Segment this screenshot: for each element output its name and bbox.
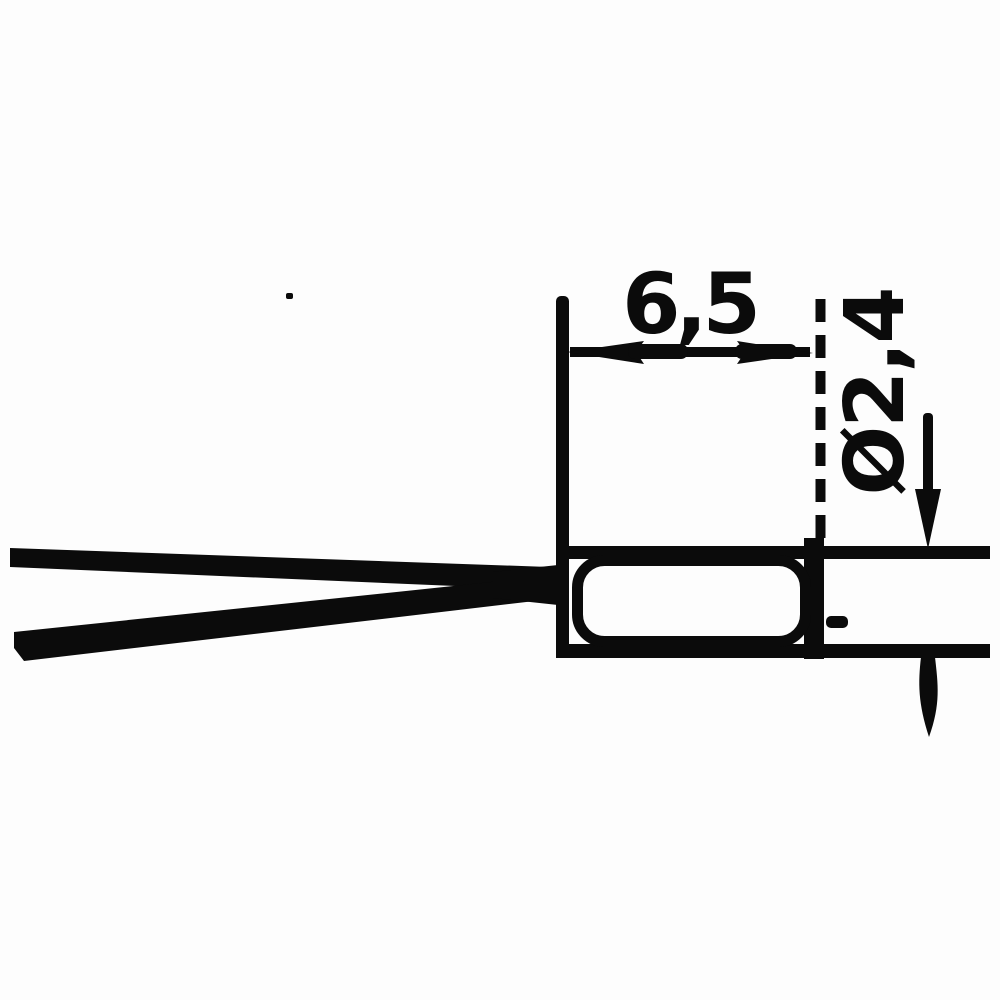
print-speck [286,293,293,299]
diameter-dimension-label: Ø2,4 [828,289,923,496]
wire-junction-blob [493,565,558,605]
length-dimension-label: 6,5 [622,255,756,353]
drawing-background [0,0,1000,1000]
technical-drawing-canvas: 6,5 Ø2,4 [0,0,1000,1000]
ink-dash-artifact [826,616,848,628]
lamp-dimension-drawing: 6,5 Ø2,4 [0,0,1000,1000]
extension-line-left [556,296,569,658]
